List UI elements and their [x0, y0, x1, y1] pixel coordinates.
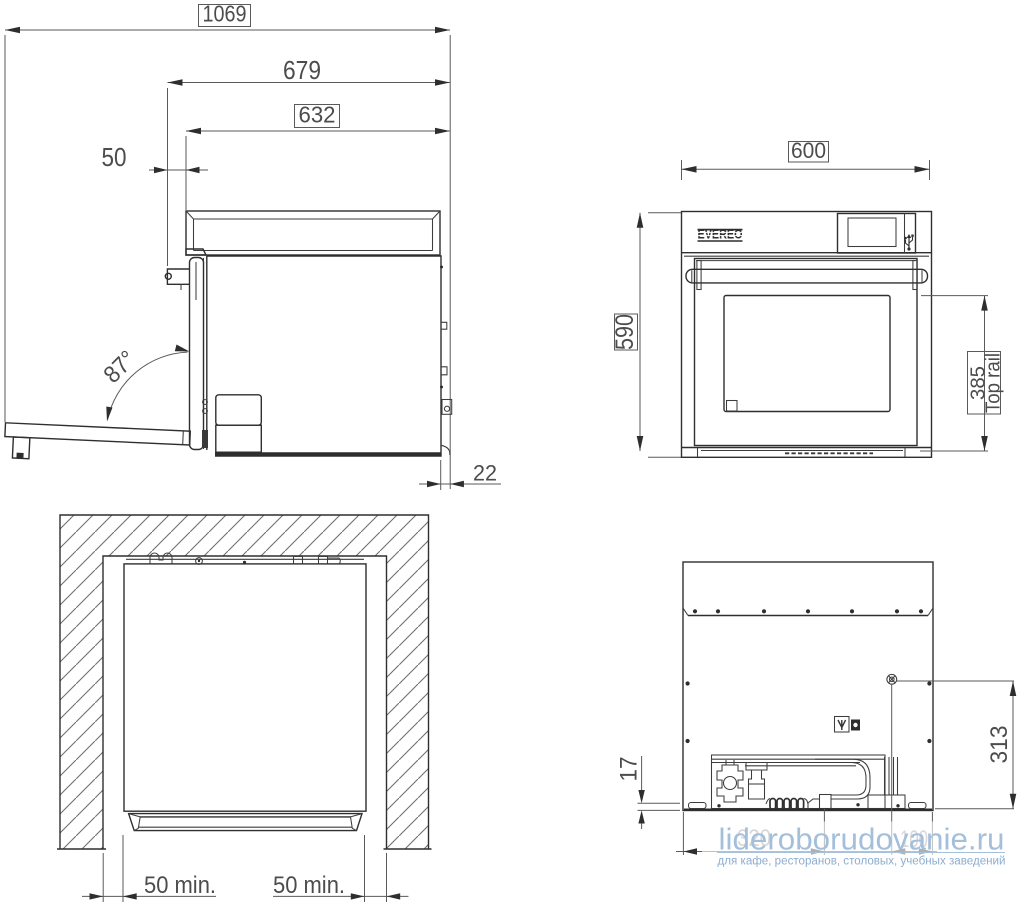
- svg-text:590: 590: [611, 314, 639, 350]
- svg-text:1069: 1069: [203, 1, 247, 27]
- svg-text:Top rail: Top rail: [983, 353, 1005, 413]
- svg-text:22: 22: [473, 461, 497, 486]
- svg-text:50 min.: 50 min.: [144, 872, 216, 899]
- svg-text:для кафе, ресторанов, столовых: для кафе, ресторанов, столовых, учебных …: [718, 856, 1006, 868]
- svg-text:600: 600: [791, 138, 826, 163]
- svg-text:632: 632: [299, 102, 336, 128]
- svg-text:313: 313: [986, 726, 1013, 764]
- svg-text:50: 50: [102, 142, 127, 172]
- svg-text:50 min.: 50 min.: [273, 872, 345, 899]
- svg-text:17: 17: [616, 757, 643, 782]
- svg-text:679: 679: [283, 55, 321, 85]
- svg-text:lideroborudovanie.ru: lideroborudovanie.ru: [719, 822, 1005, 857]
